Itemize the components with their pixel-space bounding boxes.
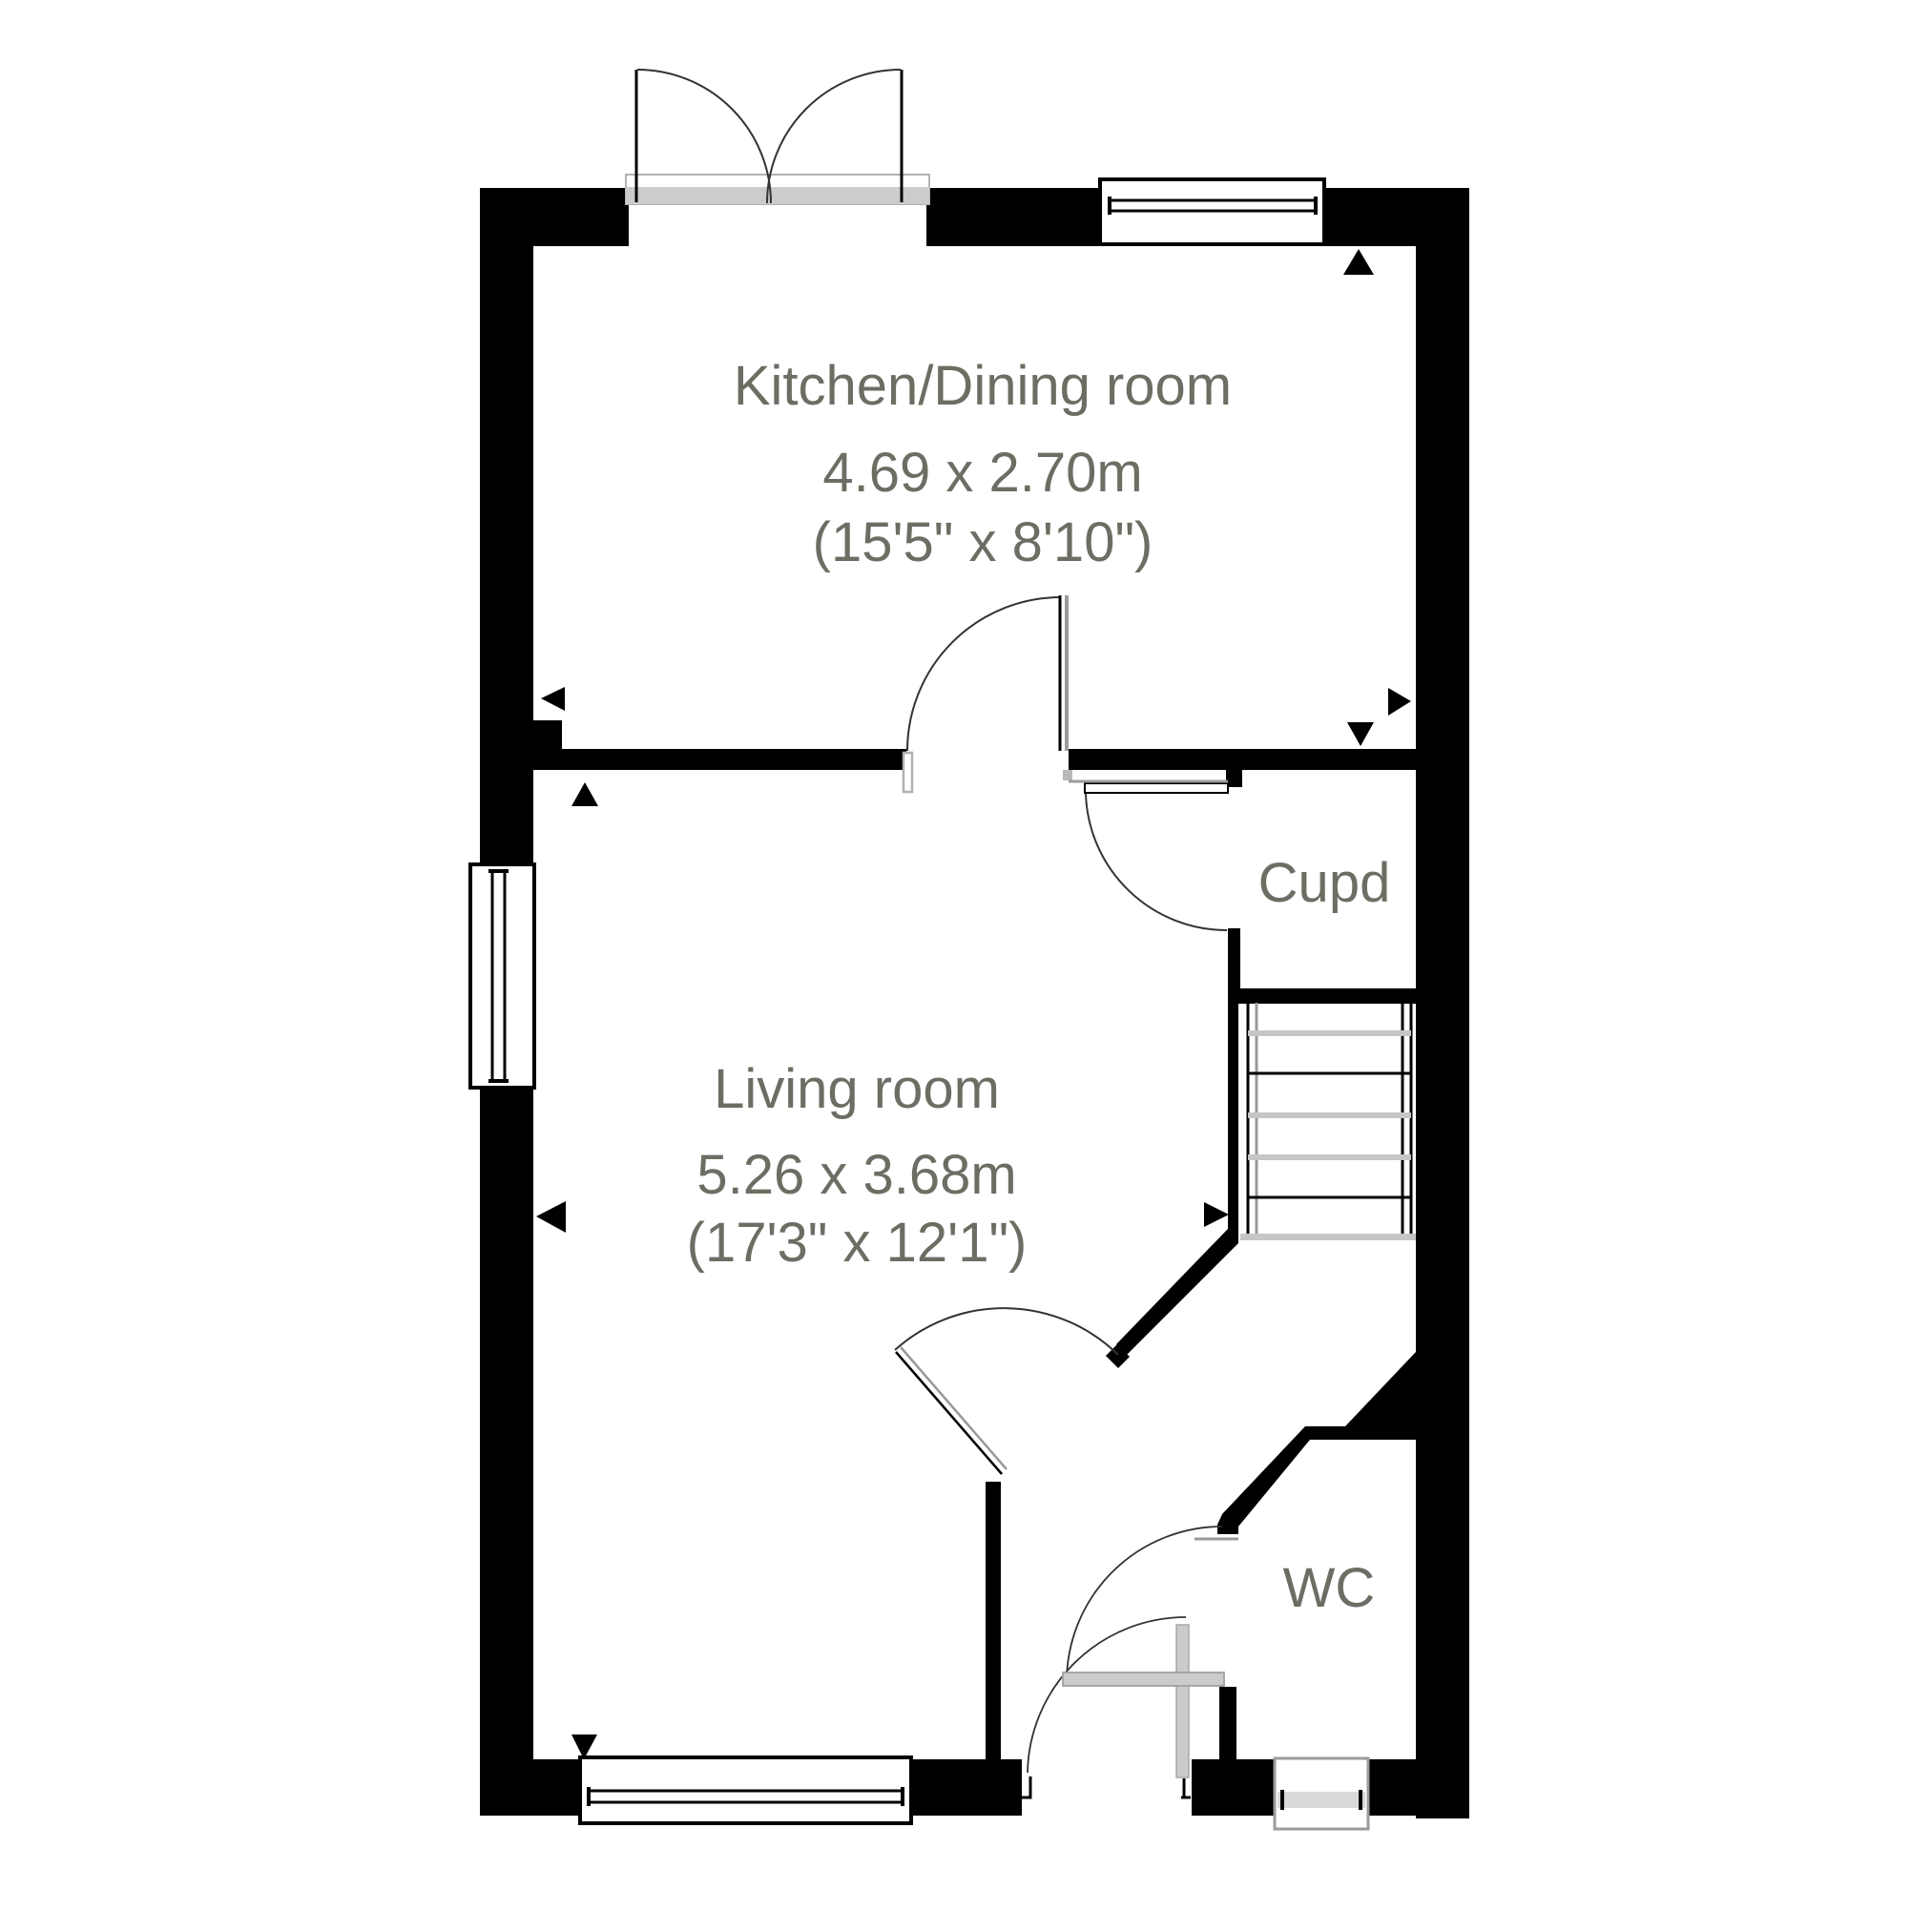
svg-text:Living room: Living room [714, 1058, 1000, 1120]
svg-text:4.69 x 2.70m: 4.69 x 2.70m [822, 442, 1142, 504]
svg-text:WC: WC [1283, 1557, 1376, 1619]
svg-text:(15'5" x 8'10"): (15'5" x 8'10") [813, 511, 1153, 573]
svg-text:Cupd: Cupd [1258, 852, 1391, 914]
svg-text:(17'3" x 12'1"): (17'3" x 12'1") [687, 1212, 1028, 1274]
svg-text:Kitchen/Dining room: Kitchen/Dining room [734, 355, 1232, 417]
svg-text:5.26 x 3.68m: 5.26 x 3.68m [696, 1144, 1016, 1206]
